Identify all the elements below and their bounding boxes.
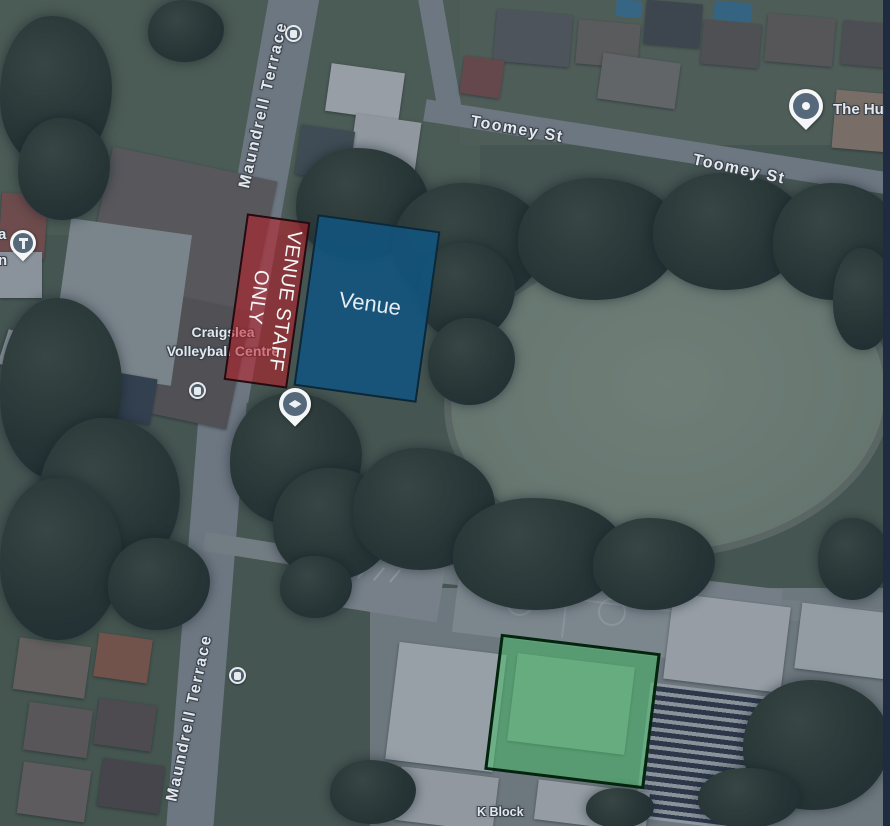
bus-stop-icon[interactable] — [189, 382, 206, 399]
place-label-cutoff: a — [0, 226, 6, 243]
place-label-k-block: K Block — [477, 805, 524, 819]
bus-stop-icon[interactable] — [229, 667, 246, 684]
map-dark-tint — [0, 0, 890, 826]
graduation-cap-icon — [283, 392, 307, 416]
satellite-map[interactable]: Maundrell Terrace Maundrell Terrace Toom… — [0, 0, 890, 826]
bus-stop-icon[interactable] — [285, 25, 302, 42]
place-label-the-hub: The Hu — [833, 101, 890, 118]
cross-icon — [13, 233, 33, 253]
poi-dot-icon — [793, 93, 819, 119]
highlight-zone — [484, 634, 660, 790]
place-label-cutoff: n — [0, 252, 7, 269]
